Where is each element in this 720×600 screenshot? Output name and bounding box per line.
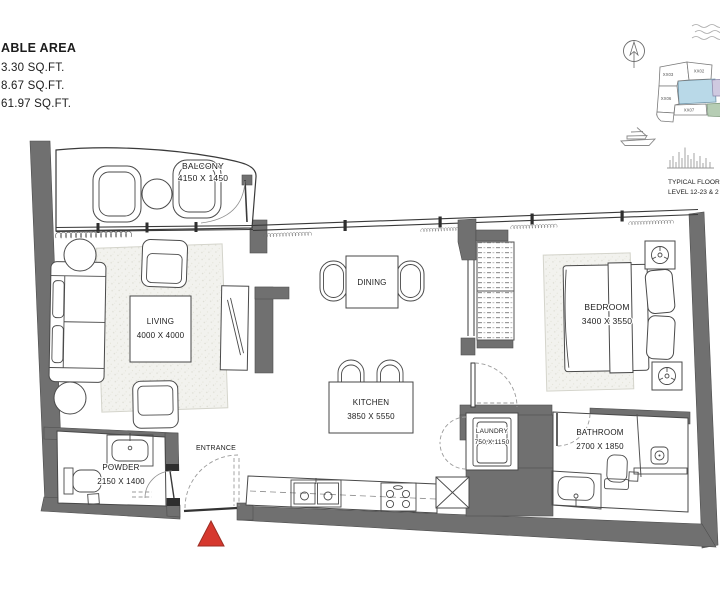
living-label-box	[130, 296, 191, 362]
bathroom-label: BATHROOM	[576, 428, 623, 437]
appliance-box	[436, 477, 469, 508]
armchair-top	[141, 239, 188, 288]
kitchen-dims: 3850 X 5550	[347, 412, 395, 421]
bar-stool-left	[338, 360, 364, 383]
keyplan-highlighted-unit	[678, 79, 716, 104]
nightstand-top	[645, 241, 675, 269]
area-line-1: 3.30 SQ.FT.	[1, 62, 65, 74]
kitchen-island	[329, 382, 413, 433]
armchair-bottom	[133, 381, 179, 429]
keyplan-unit-green	[707, 103, 720, 117]
laundry-dims: 750 X 1150	[475, 439, 510, 446]
entrance-area: ENTRANCE	[184, 445, 239, 546]
balcony-table	[142, 179, 172, 209]
area-panel: ABLE AREA 3.30 SQ.FT. 8.67 SQ.FT. 61.97 …	[1, 41, 76, 110]
entrance-marker	[198, 521, 224, 546]
floorplan-page: ABLE AREA 3.30 SQ.FT. 8.67 SQ.FT. 61.97 …	[0, 0, 720, 600]
area-panel-title: ABLE AREA	[1, 41, 76, 55]
floorplan-canvas: ABLE AREA 3.30 SQ.FT. 8.67 SQ.FT. 61.97 …	[0, 0, 720, 600]
wall-nib	[255, 287, 289, 299]
dining-area: DINING	[320, 256, 424, 308]
entrance-door-swing	[184, 455, 239, 511]
bathroom-dims: 2700 X 1850	[576, 442, 624, 451]
nightstand-bottom	[652, 362, 682, 390]
powder-room: POWDER 2150 X 1400	[57, 431, 174, 506]
tv-unit	[220, 286, 248, 370]
wardrobe	[477, 242, 514, 340]
wall-bedroom-door-top	[461, 338, 475, 355]
area-line-2: 8.67 SQ.FT.	[1, 80, 65, 92]
bedroom-dims: 3400 X 3550	[582, 316, 632, 326]
keyplan-label-1: XX03	[663, 72, 674, 77]
sofa	[49, 262, 106, 383]
wall-kitchen-bedroom-arm	[476, 230, 508, 241]
powder-door-post-top	[166, 464, 179, 471]
keyplan-label-2: XX02	[694, 69, 705, 74]
living-dims: 4000 X 4000	[137, 331, 185, 340]
keyplan-unit-purple	[712, 79, 720, 96]
north-compass-icon	[624, 41, 645, 69]
wall-kitchen-bedroom-post	[458, 219, 476, 260]
bar-stool-right	[377, 360, 403, 383]
balcony-dims: 4150 X 1450	[178, 173, 228, 183]
water-waves-icon	[692, 25, 720, 40]
balcony-door-post	[242, 175, 252, 185]
entrance-label: ENTRANCE	[196, 445, 236, 452]
wall-living-dining	[255, 287, 273, 373]
balcony-label: BALCONY	[182, 161, 224, 171]
laundry-label: LAUNDRY	[476, 428, 509, 435]
balcony-room: BALCONY 4150 X 1450	[56, 148, 256, 231]
pillow-bottom	[646, 315, 675, 359]
powder-dims: 2150 X 1400	[97, 477, 145, 486]
kitchen-area: KITCHEN 3850 X 5550	[246, 360, 469, 513]
bedroom-room: BEDROOM 3400 X 3550	[471, 241, 682, 407]
balcony-armchair-left	[93, 166, 141, 222]
keyplan-footnote-2: LEVEL 12-23 & 2	[668, 189, 719, 196]
laundry-room: LAUNDRY 750 X 1150	[440, 413, 518, 470]
keyplan-label-4: XX07	[684, 108, 695, 113]
keyplan: XX03 XX02 XX06 XX07	[657, 62, 720, 122]
bedroom-door-swing	[471, 363, 517, 407]
keyplan-footnote-1: TYPICAL FLOOR	[668, 179, 720, 186]
powder-door-post-bottom	[167, 498, 180, 506]
area-line-3: 61.97 SQ.FT.	[1, 98, 71, 110]
bathroom-room: BATHROOM 2700 X 1850	[552, 412, 688, 512]
wall-laundry-bottom-block	[466, 468, 553, 516]
bedroom-label: BEDROOM	[584, 302, 629, 312]
living-label: LIVING	[147, 317, 174, 326]
dining-label: DINING	[357, 278, 386, 287]
powder-label: POWDER	[102, 463, 139, 472]
keyplan-label-3: XX06	[661, 96, 672, 101]
kitchen-label: KITCHEN	[353, 398, 390, 407]
boat-icon	[621, 128, 655, 146]
dining-chair-right	[397, 261, 424, 301]
keyplan-unit-corner	[657, 112, 674, 122]
side-table-top	[64, 239, 96, 271]
living-room: LIVING 4000 X 4000	[49, 239, 249, 428]
skyline-icon	[667, 148, 714, 169]
wall-right	[689, 212, 718, 548]
side-table-bottom	[54, 382, 86, 414]
pillow-top	[645, 269, 676, 314]
dining-chair-left	[320, 261, 347, 301]
